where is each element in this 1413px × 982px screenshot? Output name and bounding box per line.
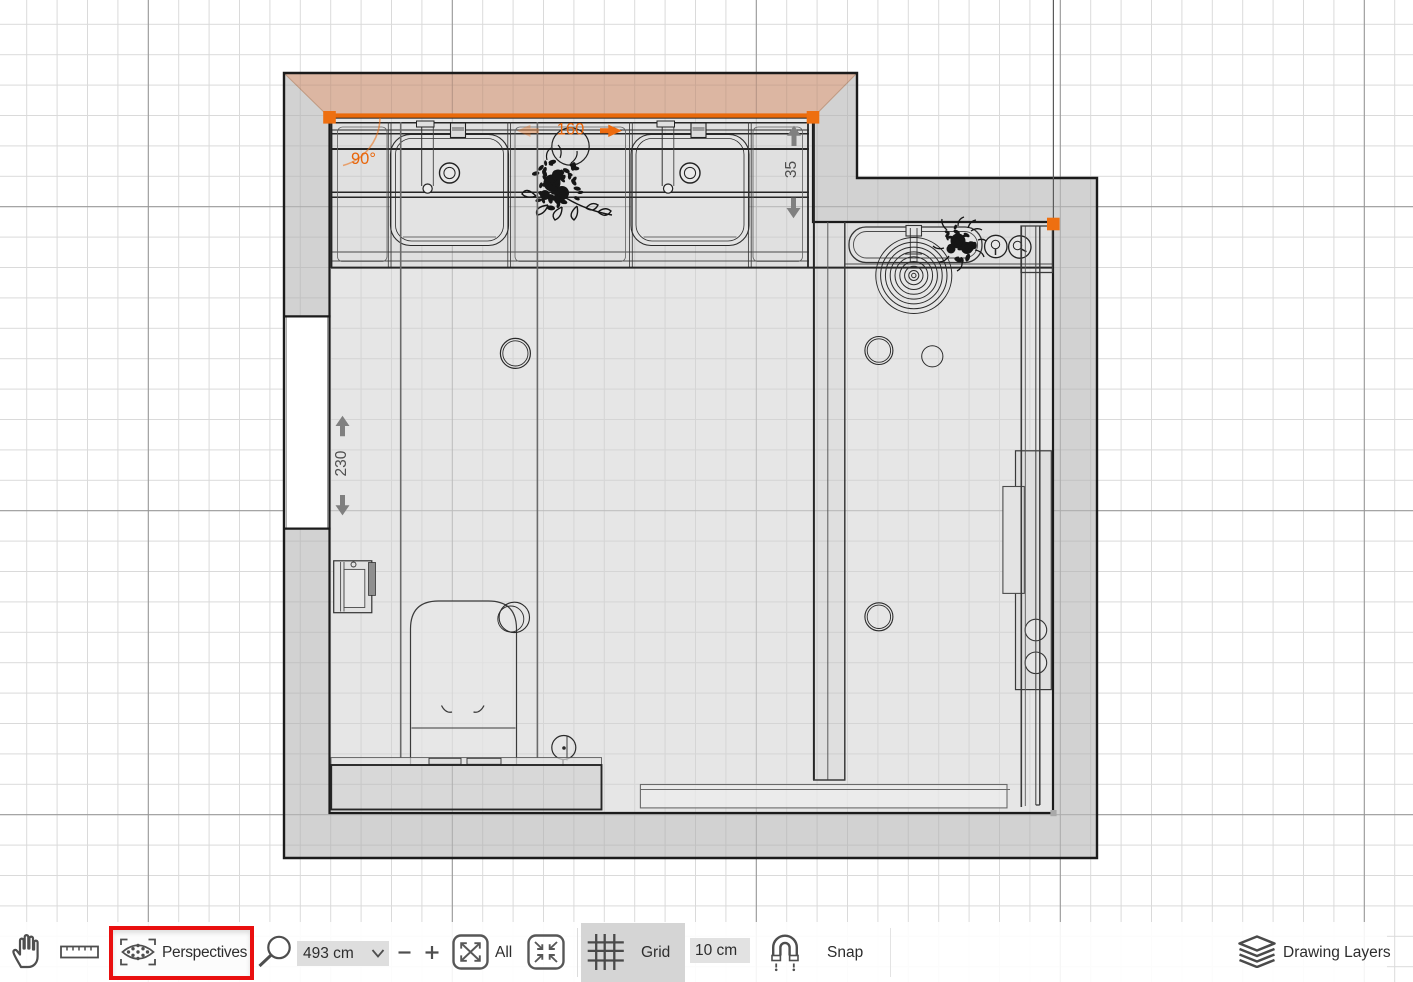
svg-text:35: 35 xyxy=(783,161,800,178)
svg-text:160: 160 xyxy=(557,120,585,138)
svg-text:90°: 90° xyxy=(351,150,376,168)
svg-text:230: 230 xyxy=(333,450,350,476)
